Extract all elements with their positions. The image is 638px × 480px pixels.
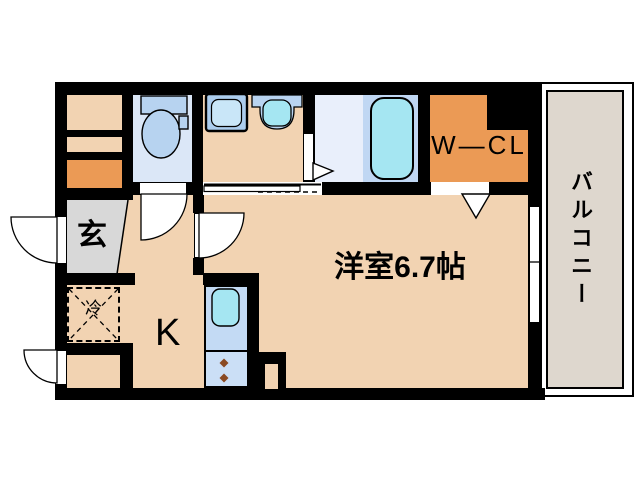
entrance-label: 玄 — [77, 221, 107, 251]
toilet-icon — [141, 96, 188, 158]
washing-machine-pan-icon — [206, 94, 247, 131]
floor-plan: 玄 冷 K 洋室6.7帖 W—CL バルコニー — [0, 0, 638, 480]
entrance-step-line — [117, 200, 128, 274]
kitchen-sink-icon — [212, 289, 239, 326]
kitchen-label: K — [155, 314, 180, 352]
door-swing-arc-icon — [11, 194, 244, 383]
refrigerator-label: 冷 — [85, 300, 102, 317]
balcony-label: バルコニー — [569, 170, 591, 310]
walk-in-closet-label: W—CL — [427, 132, 531, 158]
washbasin-icon — [252, 95, 302, 129]
sliding-door-icon — [204, 185, 321, 193]
bathtub-icon — [371, 98, 413, 179]
main-room-label: 洋室6.7帖 — [318, 253, 482, 283]
stove-burners-icon — [220, 359, 229, 383]
